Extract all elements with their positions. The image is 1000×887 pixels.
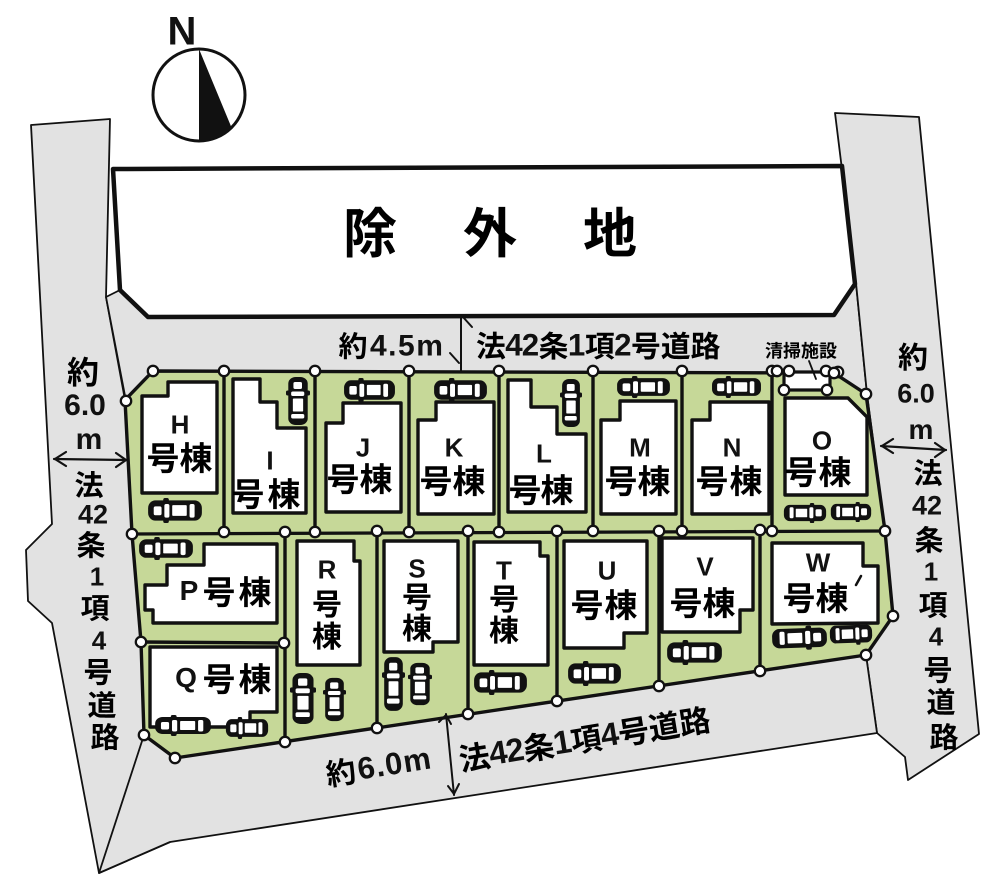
- svg-text:6.0: 6.0: [64, 389, 106, 422]
- svg-text:6.0: 6.0: [897, 379, 935, 409]
- svg-text:1: 1: [90, 561, 104, 591]
- svg-text:Q: Q: [175, 662, 197, 693]
- svg-text:O: O: [812, 425, 832, 455]
- svg-text:4: 4: [929, 621, 944, 651]
- svg-text:42: 42: [912, 491, 942, 521]
- svg-text:I: I: [266, 445, 273, 475]
- svg-text:T: T: [496, 555, 512, 585]
- svg-text:K: K: [445, 432, 464, 462]
- svg-text:m: m: [76, 423, 103, 456]
- svg-text:N: N: [723, 432, 742, 462]
- svg-text:1: 1: [924, 556, 938, 586]
- svg-text:1: 1: [568, 328, 585, 363]
- svg-text:2: 2: [614, 328, 631, 363]
- svg-text:P: P: [180, 575, 199, 606]
- svg-text:W: W: [806, 547, 831, 577]
- svg-text:L: L: [536, 438, 552, 468]
- svg-text:V: V: [696, 551, 714, 581]
- svg-text:U: U: [598, 555, 617, 585]
- svg-text:J: J: [356, 432, 370, 462]
- svg-text:42: 42: [78, 500, 108, 530]
- svg-text:M: M: [629, 432, 651, 462]
- svg-text:4: 4: [505, 328, 523, 363]
- svg-text:S: S: [408, 553, 425, 583]
- svg-text:R: R: [318, 554, 337, 584]
- svg-text:N: N: [168, 9, 197, 53]
- svg-text:m: m: [909, 414, 934, 445]
- svg-text:2: 2: [522, 328, 539, 363]
- svg-text:4: 4: [92, 625, 107, 655]
- svg-text:4.5m: 4.5m: [370, 330, 444, 363]
- svg-text:H: H: [171, 409, 190, 439]
